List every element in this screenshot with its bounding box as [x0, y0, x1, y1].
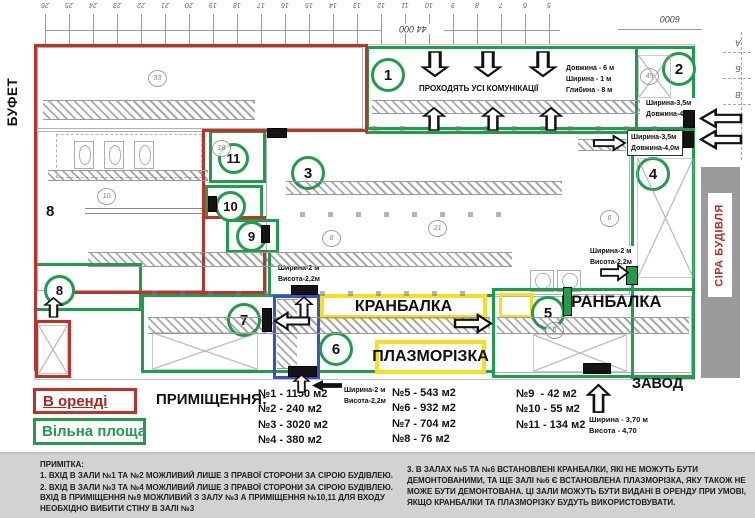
door-marker: [291, 285, 318, 295]
note-item: 3. В ЗАЛАХ №5 ТА №6 ВСТАНОВЛЕНІ КРАНБАЛК…: [407, 464, 748, 508]
grid-number: 21: [155, 1, 175, 8]
grid-number: 15: [299, 1, 319, 8]
pit-dimensions: Довжина - 6 м Ширина - 1 м Глибина - 8 м: [566, 63, 614, 96]
grid-number: 6: [515, 1, 535, 8]
premises-column-1: №1 - 1150 м2№2 - 240 м2№3 - 3020 м2№4 - …: [258, 387, 328, 448]
arrow-down-icon: [531, 52, 555, 76]
door-marker: [683, 131, 694, 148]
grid-tick: [261, 14, 262, 44]
legend-rented: В оренді: [33, 388, 137, 414]
grid-number: 26: [35, 1, 55, 8]
grid-number: 16: [275, 1, 295, 8]
grid-tick: [213, 14, 214, 44]
grid-number: 19: [203, 1, 223, 8]
door-marker: [683, 110, 695, 128]
row-letter: В: [731, 90, 745, 99]
grid-number: 11: [395, 1, 415, 8]
blueprint-number: 18: [212, 140, 231, 157]
grid-tick: [189, 14, 190, 44]
grid-tick: [141, 14, 142, 44]
stairwell-x: [638, 55, 671, 98]
fixture: [74, 141, 94, 169]
row-tick: [723, 52, 751, 53]
arrow-up-icon: [424, 108, 444, 130]
premises-item: №7 - 704 м2: [392, 417, 456, 432]
grid-number: 22: [131, 1, 151, 8]
stairwell-x: [38, 325, 68, 374]
rented-outline-top: [34, 44, 368, 47]
row-tick: [723, 104, 751, 105]
door-marker: [261, 225, 270, 243]
hatch-band: [43, 100, 255, 120]
plasma-label: ПЛАЗМОРІЗКА: [372, 348, 489, 366]
grid-tick: [69, 14, 70, 44]
fixture: [104, 141, 124, 169]
grid-tick: [357, 14, 358, 44]
stairwell-x: [533, 334, 627, 372]
premises-item: №6 - 932 м2: [392, 401, 456, 416]
legend-rented-label: В оренді: [43, 393, 107, 410]
room-marker-1: 1: [371, 58, 405, 92]
notes-left: ПРИМІТКА:1. ВХІД В ЗАЛИ №1 ТА №2 МОЖЛИВИ…: [40, 460, 410, 515]
dimension-line: [45, 30, 560, 31]
crane-label-2: КРАНБАЛКА: [561, 293, 661, 312]
gray-building-label: СІРА БУДІВЛЯ: [714, 194, 727, 298]
fixture: [134, 141, 154, 169]
grid-number: 8: [467, 1, 487, 8]
door-dimensions-b: Ширина-3,5м Довжина-4,0м: [627, 130, 683, 156]
corner-dimension-line: [618, 29, 702, 30]
grid-number: 18: [227, 1, 247, 8]
grid-tick: [45, 14, 46, 44]
crane-label-1: КРАНБАЛКА: [355, 298, 452, 316]
arrow-right-icon: [594, 136, 625, 150]
notes-right: 3. В ЗАЛАХ №5 ТА №6 ВСТАНОВЛЕНІ КРАНБАЛК…: [407, 464, 748, 509]
communications-label: ПРОХОДЯТЬ УСІ КОМУНІКАЦІЇ: [419, 84, 538, 93]
arrow-down-icon: [476, 52, 500, 76]
rented-outline-right-upper: [365, 44, 368, 133]
hatch-band: [372, 100, 640, 114]
grid-tick: [117, 14, 118, 44]
legend-free: Вільна площа: [33, 418, 146, 445]
arrow-down-icon: [423, 52, 447, 76]
row-letter: Б: [731, 64, 745, 73]
arrow-up-icon: [294, 375, 309, 392]
column-row: [372, 126, 682, 131]
arrow-left-icon: [312, 380, 342, 391]
stairwell-x: [637, 158, 694, 278]
grid-number: 20: [179, 1, 199, 8]
overall-dimension: 44 000: [382, 24, 444, 34]
grid-number: 13: [347, 1, 367, 8]
hatch-band: [88, 252, 512, 267]
grid-number: 5: [539, 1, 559, 8]
grid-number: 23: [107, 1, 127, 8]
room-marker-10: 10: [215, 191, 246, 222]
bench-line: [85, 208, 203, 214]
grid-number: 7: [491, 1, 511, 8]
door-marker: [267, 128, 287, 138]
note-item: 2. ВХІД В ЗАЛИ №3 ТА №4 МОЖЛИВИЙ ЛИШЕ З …: [40, 483, 410, 514]
premises-item: №3 - 3020 м2: [258, 418, 328, 433]
arrow-up-icon: [483, 108, 503, 130]
legend-free-label: Вільна площа: [42, 423, 146, 440]
premises-item: №9 - 42 м2: [516, 387, 585, 402]
hatch-band: [286, 181, 562, 195]
door-marker: [563, 287, 572, 316]
row-letter: А: [731, 38, 745, 47]
arrow-left-icon: [275, 313, 309, 329]
door-dimensions-e: Ширина-2 м Висота-2,2м: [344, 385, 386, 407]
blueprint-number: 8: [322, 230, 341, 247]
grid-tick: [549, 14, 550, 44]
corner-dimension: 6000: [648, 14, 692, 24]
grid-tick: [93, 14, 94, 44]
grid-number: 17: [251, 1, 271, 8]
grid-number: 9: [443, 1, 463, 8]
premises-item: №10 - 55 м2: [516, 402, 585, 417]
blueprint-number: 21: [428, 220, 447, 237]
premises-item: №8 - 76 м2: [392, 432, 456, 447]
stairwell-x: [152, 332, 258, 370]
grid-tick: [333, 14, 334, 44]
hatch-band: [277, 299, 297, 369]
grid-number: 24: [83, 1, 103, 8]
notes-title: ПРИМІТКА:: [40, 460, 410, 470]
grid-number: 12: [371, 1, 391, 8]
premises-column-3: №9 - 42 м2№10 - 55 м2№11 - 134 м2: [516, 387, 585, 433]
plasma-highlight: ПЛАЗМОРІЗКА: [375, 340, 486, 374]
grid-number: 25: [59, 1, 79, 8]
arrow-up-icon: [45, 298, 62, 317]
grid-tick: [165, 14, 166, 44]
premises-title: ПРИМІЩЕННЯ:: [156, 391, 267, 408]
arrow-left-icon: [701, 110, 741, 127]
hand-mark: 8: [46, 203, 54, 220]
grid-tick: [525, 14, 526, 44]
buffet-label: БУФЕТ: [5, 64, 21, 140]
arrow-left-icon: [701, 131, 741, 148]
crane-highlight-2-box: [499, 293, 533, 318]
grid-number: 10: [419, 1, 439, 8]
door-marker: [583, 363, 611, 374]
hatch-band: [497, 317, 689, 334]
gate-dimensions: Ширина - 3,70 м Висота - 4,70: [589, 414, 648, 436]
grid-tick: [309, 14, 310, 44]
column-row: [300, 212, 520, 217]
grid-tick: [453, 14, 454, 44]
grid-tick: [285, 14, 286, 44]
grid-tick: [501, 14, 502, 44]
hatch-band: [48, 170, 208, 181]
floor-plan: 262524232221201918171615141312111098765 …: [0, 0, 755, 518]
premises-item: №4 - 380 м2: [258, 433, 328, 448]
note-item: 1. ВХІД В ЗАЛИ №1 ТА №2 МОЖЛИВИЙ ЛИШЕ З …: [40, 471, 410, 481]
blueprint-number: 6: [600, 210, 619, 227]
premises-item: №2 - 240 м2: [258, 402, 328, 417]
premises-column-2: №5 - 543 м2№6 - 932 м2№7 - 704 м2№8 - 76…: [392, 386, 456, 447]
arrow-right-icon: [601, 265, 628, 280]
premises-item: №5 - 543 м2: [392, 386, 456, 401]
arrow-up-icon: [588, 385, 609, 412]
blueprint-number: 33: [148, 70, 167, 87]
premises-item: №11 - 134 м2: [516, 418, 585, 433]
row-tick: [723, 78, 751, 79]
door-marker: [262, 308, 272, 332]
grid-tick: [237, 14, 238, 44]
grid-number: 14: [323, 1, 343, 8]
rented-outline-inner-vertical: [202, 129, 205, 295]
blueprint-number: 10: [97, 188, 116, 205]
factory-label: ЗАВОД: [632, 376, 683, 392]
door-marker: [208, 196, 217, 212]
arrow-up-icon: [541, 108, 561, 130]
free-outline-hall3-top: [366, 131, 632, 134]
room-marker-6: 6: [319, 332, 353, 366]
arrow-right-icon: [455, 315, 491, 332]
grid-tick: [477, 14, 478, 44]
